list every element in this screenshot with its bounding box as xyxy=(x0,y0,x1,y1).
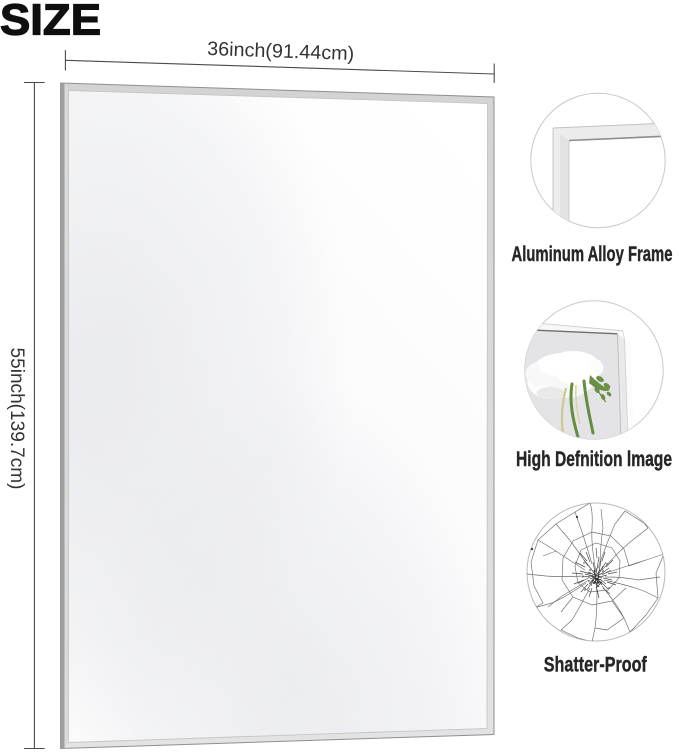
svg-text:High Defnition lmage: High Defnition lmage xyxy=(516,448,672,471)
svg-text:55inch(139.7cm): 55inch(139.7cm) xyxy=(6,348,28,490)
svg-text:Aluminum Alloy Frame: Aluminum Alloy Frame xyxy=(512,243,673,266)
svg-text:Shatter-Proof: Shatter-Proof xyxy=(544,654,648,677)
svg-text:SIZE: SIZE xyxy=(0,0,101,45)
svg-text:36inch(91.44cm): 36inch(91.44cm) xyxy=(207,38,355,65)
